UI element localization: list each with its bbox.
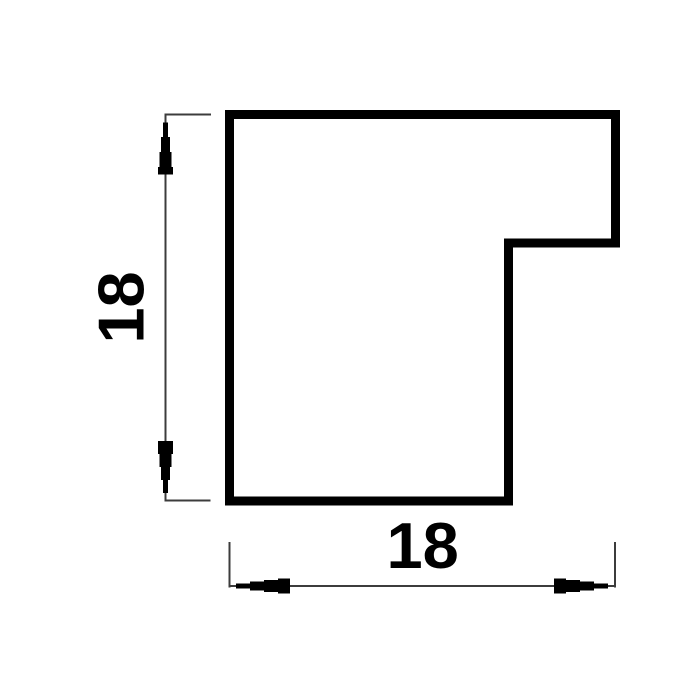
svg-text:18: 18 xyxy=(386,509,458,582)
svg-text:18: 18 xyxy=(85,271,158,343)
